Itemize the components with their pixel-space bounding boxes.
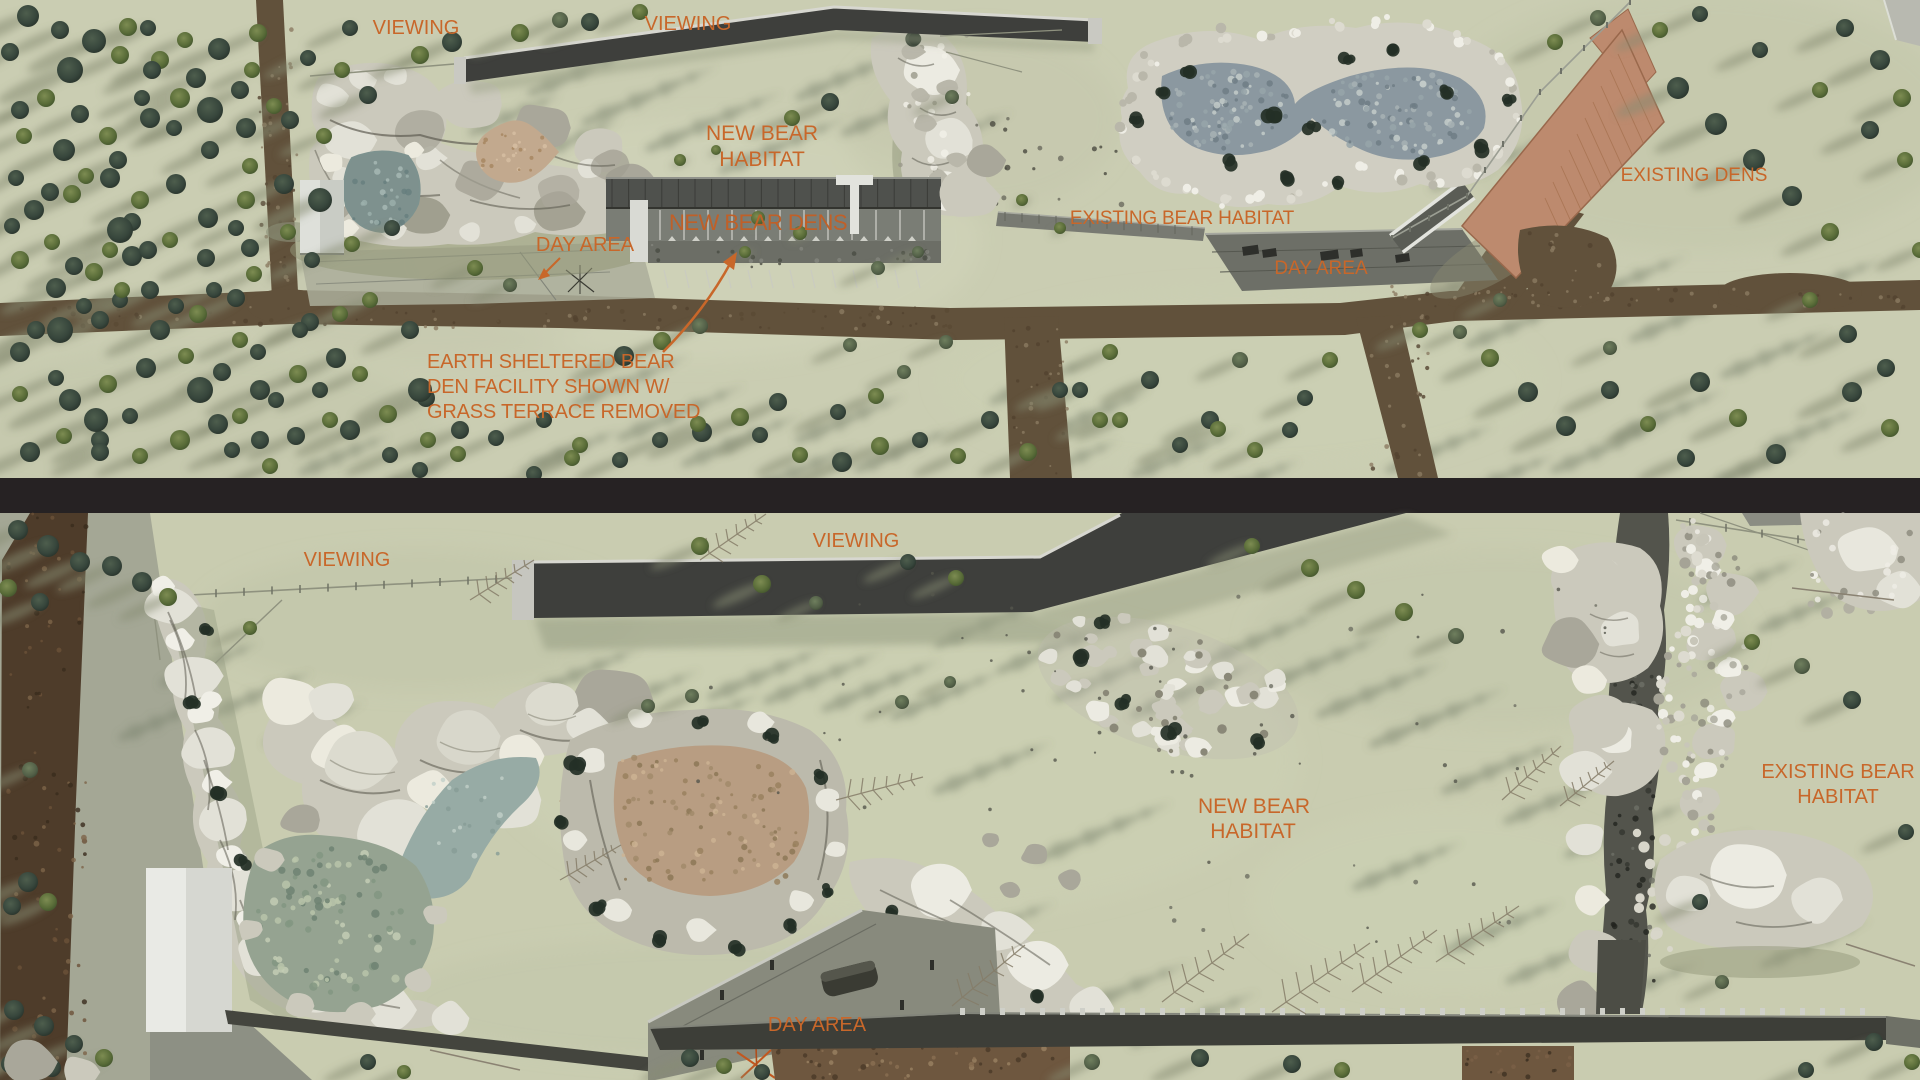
svg-text:NEW BEAR: NEW BEAR xyxy=(1198,795,1310,818)
svg-text:NEW BEAR: NEW BEAR xyxy=(706,122,818,145)
svg-text:VIEWING: VIEWING xyxy=(304,549,391,571)
svg-text:DAY AREA: DAY AREA xyxy=(768,1014,867,1036)
svg-text:HABITAT: HABITAT xyxy=(1210,820,1296,843)
svg-text:VIEWING: VIEWING xyxy=(373,17,460,39)
svg-text:GRASS TERRACE REMOVED: GRASS TERRACE REMOVED xyxy=(427,401,700,423)
svg-text:EXISTING BEAR: EXISTING BEAR xyxy=(1761,761,1914,783)
svg-text:DEN FACILITY SHOWN W/: DEN FACILITY SHOWN W/ xyxy=(427,376,670,398)
svg-text:VIEWING: VIEWING xyxy=(645,13,732,35)
svg-text:EXISTING BEAR HABITAT: EXISTING BEAR HABITAT xyxy=(1070,208,1295,229)
svg-text:HABITAT: HABITAT xyxy=(1797,786,1878,808)
svg-text:NEW BEAR DENS: NEW BEAR DENS xyxy=(669,210,847,235)
svg-text:EXISTING DENS: EXISTING DENS xyxy=(1621,165,1768,186)
svg-text:EARTH SHELTERED BEAR: EARTH SHELTERED BEAR xyxy=(427,351,675,373)
svg-text:HABITAT: HABITAT xyxy=(719,148,805,171)
svg-text:DAY AREA: DAY AREA xyxy=(1274,258,1368,279)
svg-text:DAY AREA: DAY AREA xyxy=(536,234,635,256)
svg-text:VIEWING: VIEWING xyxy=(813,530,900,552)
